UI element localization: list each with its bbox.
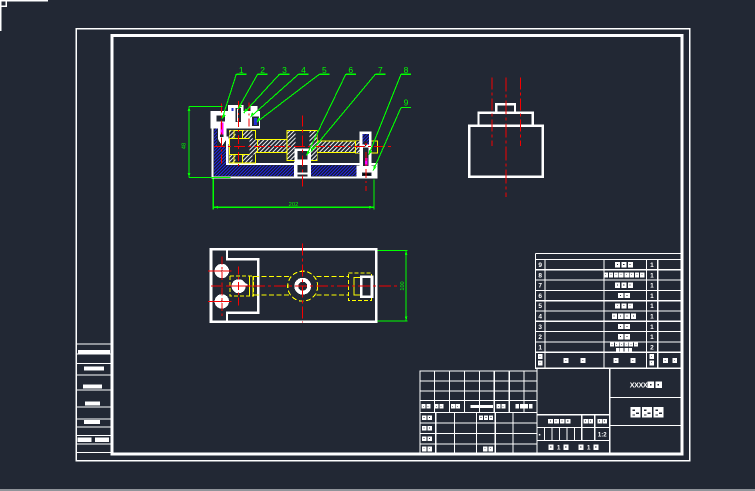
svg-text:9: 9 <box>404 98 409 108</box>
svg-text:1: 1 <box>650 293 654 300</box>
svg-text:7: 7 <box>378 65 383 75</box>
svg-text:6: 6 <box>538 293 542 300</box>
svg-text:1: 1 <box>239 65 244 75</box>
svg-text:7: 7 <box>538 283 542 290</box>
svg-text:2: 2 <box>260 65 265 75</box>
svg-text:1: 1 <box>650 283 654 290</box>
svg-text:9: 9 <box>538 262 542 269</box>
svg-text:1: 1 <box>538 344 542 351</box>
svg-text:1: 1 <box>650 303 654 310</box>
svg-text:3: 3 <box>282 65 287 75</box>
svg-text:5: 5 <box>322 65 327 75</box>
svg-text:1: 1 <box>557 445 561 452</box>
svg-text:1: 1 <box>587 445 591 452</box>
svg-text:6: 6 <box>348 65 353 75</box>
svg-text:XXXX: XXXX <box>630 380 648 389</box>
svg-text:▪: ▪ <box>538 432 540 438</box>
svg-text:8: 8 <box>538 272 542 279</box>
svg-text:1: 1 <box>650 262 654 269</box>
svg-text:202: 202 <box>289 202 299 208</box>
svg-text:2: 2 <box>650 344 654 351</box>
svg-text:5: 5 <box>538 303 542 310</box>
svg-text:1:2: 1:2 <box>598 433 607 439</box>
svg-text:100: 100 <box>400 281 406 290</box>
svg-text:3: 3 <box>538 324 542 331</box>
svg-text:8: 8 <box>404 65 409 75</box>
svg-text:1: 1 <box>650 272 654 279</box>
svg-text:1: 1 <box>650 314 654 321</box>
svg-text:48: 48 <box>182 143 188 149</box>
svg-text:4: 4 <box>538 314 542 321</box>
svg-text:2: 2 <box>538 334 542 341</box>
svg-text:4: 4 <box>301 65 306 75</box>
svg-text:1: 1 <box>650 324 654 331</box>
svg-text:1: 1 <box>650 334 654 341</box>
